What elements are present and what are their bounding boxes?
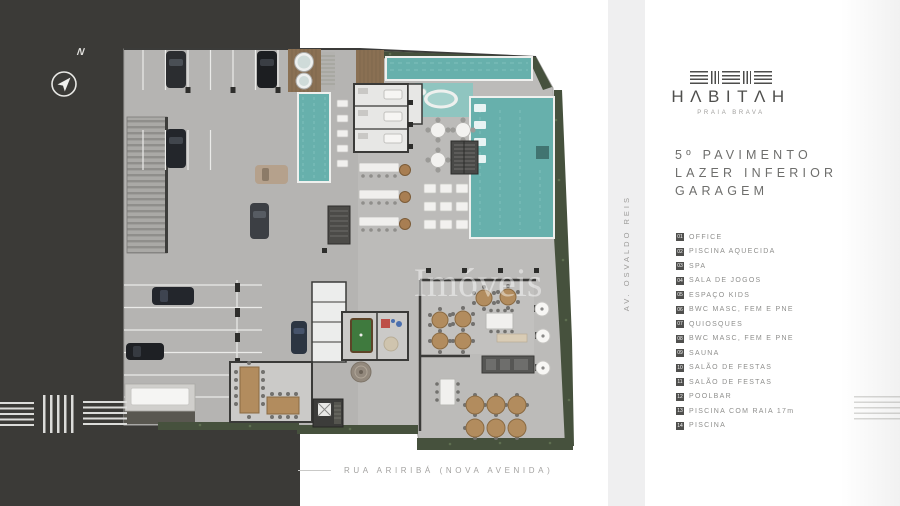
legend-item: 08BWC MASC, FEM E PNE	[676, 335, 794, 343]
legend-num: 06	[676, 306, 684, 314]
legend-item: 06BWC MASC, FEM E PNE	[676, 306, 794, 314]
page-title: 5º PAVIMENTO LAZER INFERIOR GARAGEM	[675, 146, 837, 200]
legend-item: 07QUIOSQUES	[676, 320, 794, 328]
watermark-text: Imóveis	[414, 260, 543, 305]
legend-item: 13PISCINA COM RAIA 17m	[676, 407, 794, 415]
floor-plan: Imóveis	[112, 42, 608, 462]
right-shade	[840, 0, 900, 506]
legend-num: 12	[676, 393, 684, 401]
legend-item: 03SPA	[676, 262, 794, 270]
legend-item: 09SAUNA	[676, 349, 794, 357]
legend-item: 11SALÃO DE FESTAS	[676, 378, 794, 386]
legend-label: SALÃO DE FESTAS	[689, 379, 772, 386]
street-bottom-label: RUA ARIRIBÁ (NOVA AVENIDA)	[344, 466, 553, 475]
title-line: 5º PAVIMENTO	[675, 146, 837, 164]
title-line: LAZER INFERIOR	[675, 164, 837, 182]
street-bottom-line	[298, 470, 331, 471]
motif-hlines-icon	[83, 401, 127, 428]
legend-num: 02	[676, 248, 684, 256]
legend-label: PISCINA AQUECIDA	[689, 248, 776, 255]
legend-label: OFFICE	[689, 234, 722, 241]
legend-label: BWC MASC, FEM E PNE	[689, 335, 794, 342]
motif-vbars-icon	[43, 395, 74, 433]
legend-num: 11	[676, 378, 684, 386]
legend-num: 03	[676, 262, 684, 270]
legend-num: 14	[676, 422, 684, 430]
legend-num: 08	[676, 335, 684, 343]
legend-label: SAUNA	[689, 350, 720, 357]
brand-tagline: PRAIA BRAVA	[645, 110, 817, 116]
legend-num: 07	[676, 320, 684, 328]
brand-logo: HΛBITΛH PRAIA BRAVA	[645, 70, 817, 116]
legend: 01OFFICE 02PISCINA AQUECIDA 03SPA 04SALA…	[676, 233, 794, 436]
legend-label: PISCINA	[689, 422, 726, 429]
legend-label: BWC MASC, FEM E PNE	[689, 306, 794, 313]
street-bottom: RUA ARIRIBÁ (NOVA AVENIDA)	[298, 466, 598, 475]
corner-motif	[0, 394, 127, 434]
legend-item: 12POOLBAR	[676, 393, 794, 401]
brand-motif-icon	[645, 70, 817, 84]
legend-label: SPA	[689, 263, 706, 270]
legend-item: 05ESPAÇO KIDS	[676, 291, 794, 299]
legend-label: ESPAÇO KIDS	[689, 292, 750, 299]
legend-item: 10SALÃO DE FESTAS	[676, 364, 794, 372]
legend-label: SALA DE JOGOS	[689, 277, 762, 284]
legend-num: 10	[676, 364, 684, 372]
legend-item: 14PISCINA	[676, 422, 794, 430]
legend-num: 13	[676, 407, 684, 415]
legend-num: 04	[676, 277, 684, 285]
legend-item: 04SALA DE JOGOS	[676, 277, 794, 285]
legend-num: 09	[676, 349, 684, 357]
legend-num: 05	[676, 291, 684, 299]
title-line: GARAGEM	[675, 182, 837, 200]
motif-hlines-icon	[0, 402, 34, 426]
street-side-label: AV. OSVALDO REIS	[622, 195, 631, 311]
legend-num: 01	[676, 233, 684, 241]
compass-north-label: N	[76, 47, 85, 58]
legend-item: 02PISCINA AQUECIDA	[676, 248, 794, 256]
legend-label: QUIOSQUES	[689, 321, 743, 328]
brand-name: HΛBITΛH	[645, 87, 817, 107]
compass-icon	[50, 70, 78, 98]
legend-item: 01OFFICE	[676, 233, 794, 241]
floorplan-page: N	[0, 0, 900, 506]
legend-label: SALÃO DE FESTAS	[689, 364, 772, 371]
street-strip: AV. OSVALDO REIS	[608, 0, 645, 506]
legend-label: PISCINA COM RAIA 17m	[689, 408, 794, 415]
legend-label: POOLBAR	[689, 393, 732, 400]
